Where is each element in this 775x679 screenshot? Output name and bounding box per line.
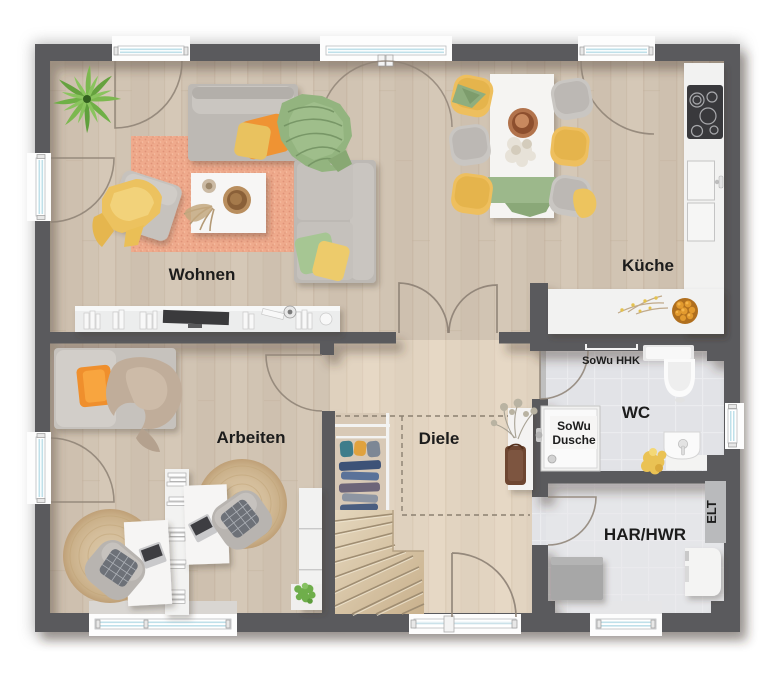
svg-text:ELT: ELT: [704, 500, 719, 524]
svg-text:HAR/HWR: HAR/HWR: [604, 525, 686, 544]
svg-text:Küche: Küche: [622, 256, 674, 275]
svg-text:Wohnen: Wohnen: [169, 265, 236, 284]
svg-text:SoWu: SoWu: [557, 419, 591, 433]
svg-text:Dusche: Dusche: [552, 433, 596, 447]
svg-text:SoWu HHK: SoWu HHK: [582, 355, 640, 367]
svg-text:WC: WC: [622, 403, 650, 422]
svg-text:Arbeiten: Arbeiten: [217, 428, 286, 447]
svg-text:Diele: Diele: [419, 429, 460, 448]
